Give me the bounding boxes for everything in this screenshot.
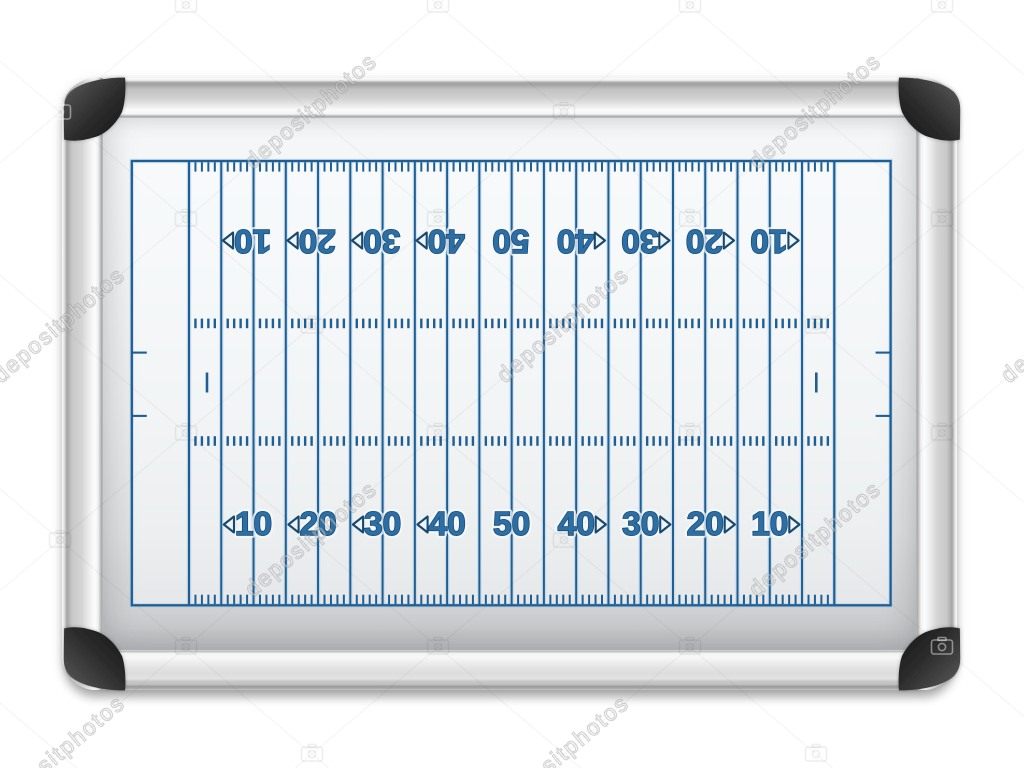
svg-text:depositphotos: depositphotos	[240, 476, 382, 602]
svg-text:depositphotos: depositphotos	[240, 48, 382, 174]
svg-text:depositphotos: depositphotos	[996, 690, 1024, 768]
svg-text:depositphotos: depositphotos	[492, 690, 634, 768]
svg-text:depositphotos: depositphotos	[744, 476, 886, 602]
svg-text:depositphotos: depositphotos	[492, 262, 634, 388]
svg-text:depositphotos: depositphotos	[0, 690, 130, 768]
svg-text:depositphotos: depositphotos	[996, 262, 1024, 388]
svg-text:depositphotos: depositphotos	[744, 48, 886, 174]
